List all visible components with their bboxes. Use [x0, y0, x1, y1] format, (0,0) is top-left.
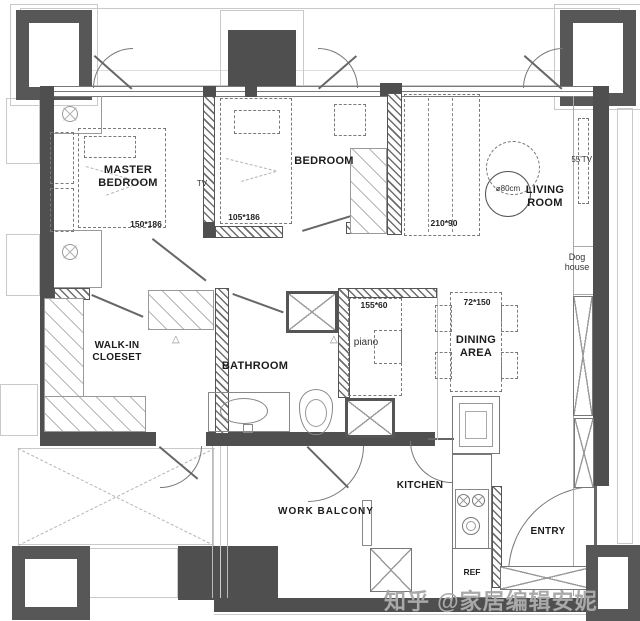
piano-shaft: [345, 398, 395, 438]
living-sofa-dim: 210*90: [424, 218, 464, 228]
niche-divider-2: [573, 294, 593, 295]
piano-dim: 155*60: [350, 300, 398, 310]
zhihu-watermark: 知乎 @家居编辑安妮: [384, 584, 598, 616]
left-exterior-c: [0, 384, 38, 436]
concrete-block-bottom: [178, 546, 278, 600]
master-nightstand-1: [50, 132, 74, 184]
dining-area-label-line1: DINING: [456, 334, 496, 346]
wall-bedroom2-bottom-left: [215, 226, 283, 238]
kitchen-tall-unit-core: [465, 411, 487, 439]
master-bed-dim: 150*186: [122, 219, 170, 229]
dining-area-label: DINING AREA: [446, 334, 506, 360]
living-room-label-line2: ROOM: [527, 197, 562, 209]
kitchen-label: KITCHEN: [384, 480, 456, 492]
bathroom-faucet: [243, 424, 253, 433]
wall-stub-1: [245, 84, 257, 97]
kitchen-sink: [462, 517, 480, 535]
threshold-marker-1: △: [172, 334, 180, 345]
wall-master-bedroom2: [203, 96, 215, 228]
bedroom-label: BEDROOM: [294, 155, 354, 168]
bedroom-tv-label: TV: [193, 179, 211, 188]
master-door-leaf: [152, 238, 207, 281]
entry-label: ENTRY: [516, 526, 580, 538]
master-bed-pillow: [84, 136, 136, 158]
wall-stub-4: [203, 222, 215, 238]
ac-ledge: [228, 30, 296, 88]
closet-entry-cabinet: [148, 290, 214, 330]
dog-house-label-line2: house: [565, 262, 590, 272]
living-sofa-line-1: [428, 98, 429, 232]
bedroom-desk: [334, 104, 366, 136]
walk-in-closet-label-line1: WALK-IN: [95, 340, 140, 351]
master-bedroom-label-line1: MASTER: [104, 164, 152, 176]
dining-table-dim: 72*150: [458, 297, 496, 307]
bathroom-shaft: [286, 291, 338, 333]
fridge-label: REF: [452, 567, 492, 577]
living-sofa: [404, 94, 480, 236]
tv-size-label: 55'TV: [548, 155, 592, 164]
dining-area-label-line2: AREA: [460, 347, 492, 359]
niche-divider-1: [573, 246, 593, 247]
closet-door-leaf: [91, 294, 143, 318]
kitchen-door-leaf: [428, 438, 454, 440]
bathroom-door-leaf: [232, 293, 283, 313]
dog-house-label-line1: Dog: [569, 252, 586, 262]
master-bedroom-label-line2: BEDROOM: [98, 177, 158, 189]
toilet-seat: [305, 399, 327, 427]
stove-burner-2: [472, 494, 485, 507]
master-bedroom-label: MASTER BEDROOM: [84, 164, 172, 190]
master-bay-b: [54, 230, 102, 288]
living-room-label-line1: LIVING: [526, 184, 564, 196]
bottom-exterior-a: [88, 548, 178, 598]
master-nightstand-2: [50, 188, 74, 232]
right-outer-wall-upper: [593, 86, 609, 486]
bedroom2-door-leaf: [302, 215, 350, 232]
right-exterior-strip: [617, 108, 633, 544]
bathroom-sink: [220, 398, 268, 424]
wall-piano-top: [348, 288, 437, 298]
wall-bedroom2-living: [387, 93, 402, 235]
left-exterior-b: [6, 234, 40, 296]
ceiling-light-icon-b: [62, 244, 78, 260]
bedroom-wardrobe: [350, 148, 387, 234]
dining-chair-1: [435, 305, 452, 332]
bedroom-bed-pillow: [234, 110, 280, 134]
threshold-marker-2: △: [330, 334, 338, 345]
corner-column-bl: [12, 546, 90, 620]
bedroom-bed-dim: 105*186: [222, 212, 266, 222]
ceiling-light-icon-a: [62, 106, 78, 122]
dining-chair-3: [501, 305, 518, 332]
walk-in-closet-label: WALK-IN CLOESET: [82, 340, 152, 364]
niche-cabinet: [573, 296, 593, 416]
kitchen-door-arc: [410, 441, 452, 483]
living-room-label: LIVING ROOM: [518, 184, 572, 210]
left-exterior-a: [6, 98, 40, 164]
workbalcony-glazing-line: [220, 446, 221, 598]
bottom-wall-closet-a: [40, 432, 156, 446]
bathroom-label: BATHROOM: [220, 360, 290, 373]
dog-house-label: Dog house: [556, 252, 598, 273]
piano-bench: [374, 330, 402, 364]
living-sofa-line-2: [452, 98, 453, 232]
stove-burner-1: [457, 494, 470, 507]
floor-plan: MASTER BEDROOM 150*186 TV BEDROOM 105*18…: [0, 0, 640, 621]
walk-in-closet-label-line2: CLOESET: [92, 352, 141, 363]
entry-closet: [574, 418, 594, 488]
work-balcony-label: WORK BALCONY: [266, 506, 386, 518]
closet-shelf-bottom: [44, 396, 146, 432]
